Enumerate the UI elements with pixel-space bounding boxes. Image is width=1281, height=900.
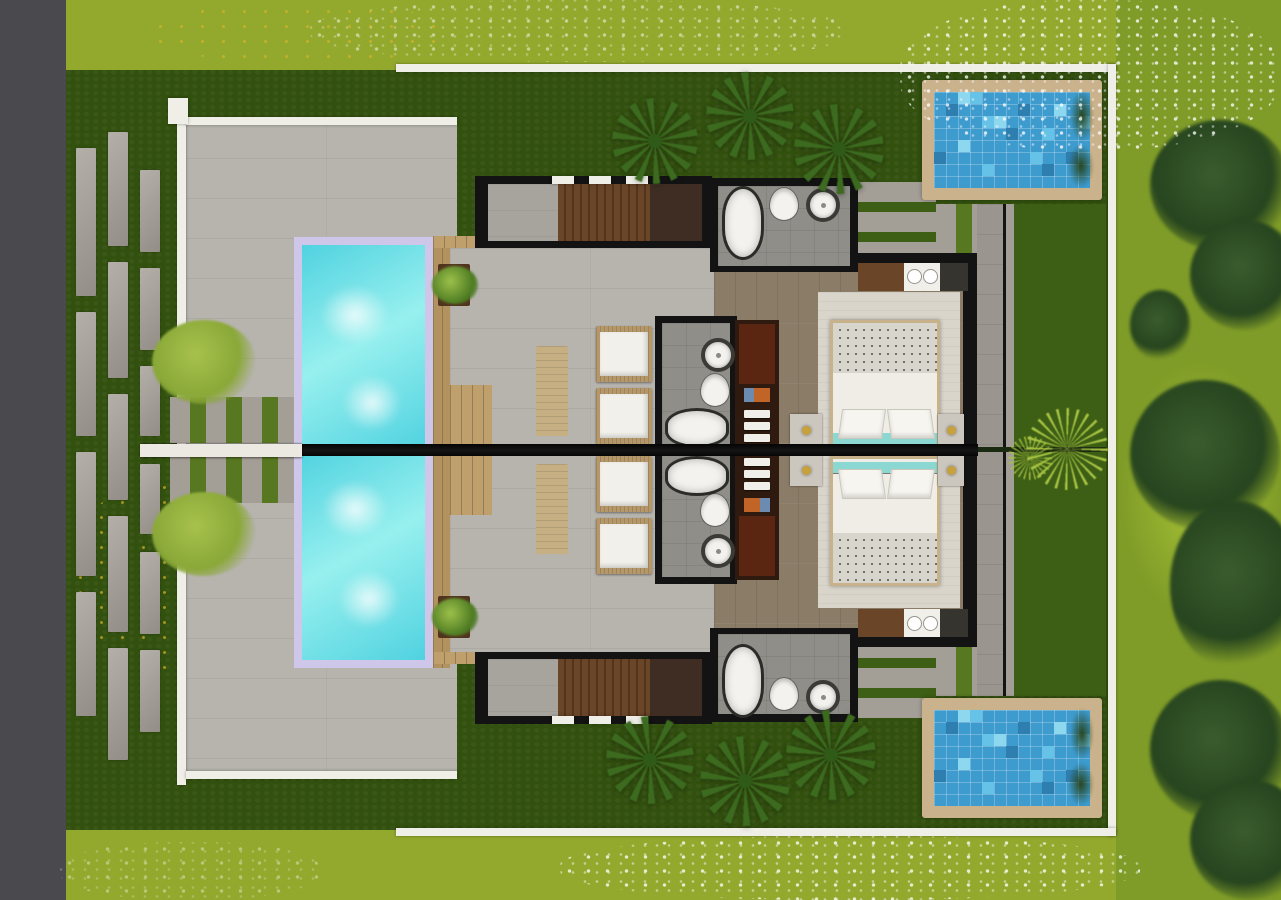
- bed-throw: [833, 533, 937, 583]
- entry-walkway: [140, 444, 302, 457]
- bathtub: [665, 408, 729, 448]
- towel: [744, 470, 770, 478]
- stepping-stone: [76, 312, 96, 436]
- skylight: [589, 176, 611, 184]
- deck-planter-bottom: [438, 596, 470, 638]
- toilet: [770, 678, 798, 710]
- pavilion-roof-top: [475, 176, 712, 248]
- stepping-stone: [108, 262, 128, 378]
- toilet: [701, 494, 729, 526]
- spike-plant: [1008, 436, 1052, 480]
- palm-tree: [700, 736, 790, 826]
- boundary-wall-right: [1108, 64, 1116, 836]
- stepping-stone: [140, 650, 160, 732]
- stepping-stone: [108, 132, 128, 246]
- towel: [744, 482, 770, 490]
- towel: [744, 422, 770, 430]
- toilet: [770, 188, 798, 220]
- stepping-stone: [76, 592, 96, 716]
- nightstand: [790, 414, 822, 446]
- gate-post: [168, 98, 188, 124]
- main-pool-top: [294, 237, 433, 450]
- pool-water: [302, 245, 425, 450]
- skylight: [552, 176, 574, 184]
- center-shadow-band: [302, 444, 978, 456]
- double-bed-top: [830, 320, 940, 450]
- palm-tree: [786, 710, 876, 800]
- basin: [701, 338, 735, 372]
- terrace-wall-bottom: [186, 771, 457, 779]
- palm-tree: [706, 72, 794, 160]
- pool-water: [302, 450, 425, 660]
- pillow: [838, 409, 886, 439]
- double-bed-bottom: [830, 456, 940, 586]
- pillow: [887, 409, 935, 439]
- stepping-stone: [76, 148, 96, 296]
- lounge-chair: [596, 518, 652, 574]
- boundary-wall-bottom: [396, 828, 1116, 836]
- tree: [1130, 290, 1190, 360]
- plunge-pool-bottom: [922, 698, 1102, 818]
- stepping-stone: [76, 452, 96, 576]
- stepping-stone: [140, 552, 160, 634]
- bathtub: [665, 456, 729, 496]
- bathtub: [722, 644, 764, 718]
- sun-mat-bottom: [536, 464, 568, 554]
- flower-patch-bottom: [560, 836, 1140, 900]
- lounge-chair: [596, 326, 652, 382]
- nightstand: [938, 414, 964, 446]
- towel: [744, 434, 770, 442]
- bathtub: [722, 186, 764, 260]
- palm-tree: [612, 98, 698, 184]
- garden-stripe-band-upper: [170, 397, 302, 443]
- stepping-stone: [140, 268, 160, 350]
- garden-shrub: [152, 492, 256, 576]
- bedroom-wall-top: [858, 253, 977, 263]
- flower-patch-top-right: [900, 0, 1280, 150]
- lounge-chair: [596, 388, 652, 444]
- basin: [701, 534, 735, 568]
- flower-patch-bottom-left: [60, 842, 320, 900]
- garden-shrub: [152, 320, 256, 404]
- pool-bench-top: [433, 236, 481, 248]
- bedroom-wall-bottom: [858, 637, 977, 647]
- villa-floor-plan-rendering: [0, 0, 1281, 900]
- vanity-top: [858, 263, 968, 291]
- palm-tree: [606, 716, 694, 804]
- terrace-wall-top: [186, 117, 457, 125]
- deck-planter-top: [438, 264, 470, 306]
- basin: [806, 680, 840, 714]
- bed-throw: [833, 323, 937, 373]
- stepping-stone: [140, 170, 160, 252]
- bathroom-bottom: [710, 628, 858, 722]
- palm-tree: [794, 104, 884, 194]
- nightstand: [790, 454, 822, 486]
- skylight: [552, 716, 574, 724]
- flower-patch-top-center: [310, 0, 850, 62]
- pillow: [887, 469, 935, 499]
- stepping-stone: [108, 394, 128, 500]
- main-pool-bottom: [294, 450, 433, 668]
- dark-sidebar: [0, 0, 66, 900]
- pool-bench-bottom: [433, 652, 481, 664]
- skylight: [589, 716, 611, 724]
- lounge-chair: [596, 456, 652, 512]
- pillow: [838, 469, 886, 499]
- toilet: [701, 374, 729, 406]
- towel: [744, 410, 770, 418]
- sun-mat-top: [536, 346, 568, 436]
- stepping-stone: [108, 648, 128, 760]
- nightstand: [938, 454, 964, 486]
- stepping-stone: [108, 516, 128, 632]
- vanity-bottom: [858, 609, 968, 637]
- towel: [744, 458, 770, 466]
- pavilion-roof-bottom: [475, 652, 712, 724]
